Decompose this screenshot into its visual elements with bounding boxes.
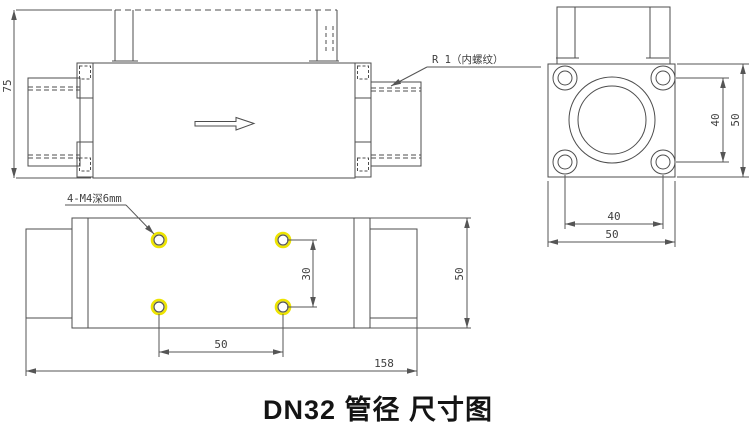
sensor-body-plan: [88, 218, 354, 328]
right-pipe-fitting: [371, 82, 421, 166]
flange-bolt-hole: [651, 66, 675, 90]
mounting-hole: [152, 233, 166, 247]
bottom-view-geometry: [26, 218, 417, 328]
dim-hole-pitch-horizontal: 50: [214, 338, 227, 351]
flow-direction-arrow-icon: [195, 118, 254, 131]
left-pipe-plan: [26, 229, 72, 318]
end-view-circles: [553, 66, 675, 174]
bottom-view-dimensions: 4-M4深6mm 30 50 158 50: [26, 193, 471, 376]
pipe-bore-outer-circle: [569, 77, 655, 163]
flange-bolt-hole: [651, 150, 675, 174]
mounting-hole-note-label: 4-M4深6mm: [67, 193, 122, 205]
pipe-bore-inner-circle: [578, 86, 646, 154]
bottom-view: 4-M4深6mm 30 50 158 50: [26, 193, 471, 376]
flange-bolt-hole: [553, 150, 577, 174]
side-view-geometry: [28, 10, 421, 178]
side-view-dimensions: 75 R 1（内螺纹）: [1, 10, 541, 178]
dim-hole-pitch-vertical: 30: [300, 267, 313, 280]
dim-overall-height: 75: [1, 79, 14, 92]
end-view: 40 50 40 50: [548, 7, 749, 247]
dim-hole-pitch-horizontal: 40: [607, 210, 620, 223]
mounting-hole-leader: [126, 205, 154, 234]
thread-note-label: R 1（内螺纹）: [432, 53, 503, 66]
housing-end: [557, 7, 670, 64]
end-view-dimensions: 40 50 40 50: [548, 64, 749, 247]
sensor-body-side: [93, 63, 355, 178]
dim-overall-length: 158: [374, 357, 394, 370]
technical-drawing: 75 R 1（内螺纹）: [0, 0, 750, 428]
left-pipe-fitting: [28, 78, 80, 166]
mounting-hole: [152, 300, 166, 314]
flange-bolt-hole: [553, 66, 577, 90]
dim-body-width: 50: [453, 267, 466, 280]
dim-flange-height: 50: [729, 113, 742, 126]
drawing-title: DN32 管径 尺寸图: [263, 395, 493, 425]
end-view-geometry: [548, 7, 675, 177]
dimension-drawing-page: 75 R 1（内螺纹）: [0, 0, 750, 428]
right-pipe-plan: [370, 229, 417, 318]
thread-note-leader: [391, 67, 427, 86]
dim-hole-pitch-vertical: 40: [709, 113, 722, 126]
side-view: 75 R 1（内螺纹）: [1, 10, 541, 178]
dim-flange-width: 50: [605, 228, 618, 241]
mounting-holes: [152, 233, 290, 314]
